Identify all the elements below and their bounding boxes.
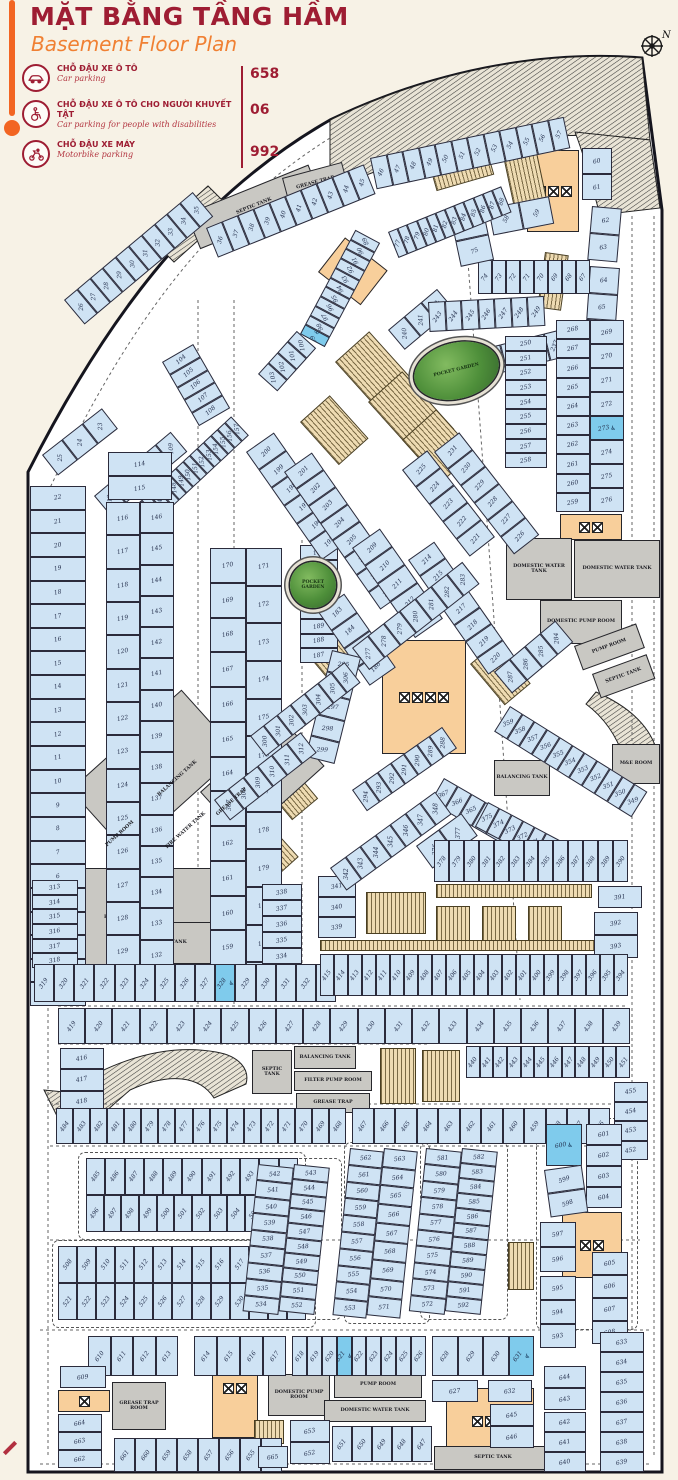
compass-north-label: N — [661, 30, 672, 41]
parking-stall: 122 — [106, 702, 140, 735]
parking-stall: 525 — [134, 1283, 153, 1320]
parking-stall: 490 — [182, 1158, 201, 1195]
parking-stall: 641 — [544, 1432, 586, 1452]
parking-stall: 72 — [506, 260, 520, 294]
parking-stall: 332 — [296, 964, 316, 1002]
parking-stall: 314 — [32, 895, 78, 910]
parking-stall: 527 — [172, 1283, 191, 1320]
parking-stall: 643 — [544, 1388, 586, 1410]
parking-stall: 71 — [520, 260, 534, 294]
parking-stall: 455 — [614, 1082, 648, 1102]
parking-stall: 244 — [445, 300, 463, 331]
parking-stall: 270 — [590, 344, 624, 368]
parking-stall: 165 — [210, 722, 246, 757]
parking-stall: 662 — [58, 1450, 102, 1468]
wheelchair-icon — [22, 100, 50, 128]
stair-core-right — [560, 514, 622, 540]
parking-stall: 432 — [412, 1008, 439, 1044]
parking-stall: 414 — [334, 954, 348, 996]
accent-bar — [9, 0, 15, 116]
parking-stall: 502 — [192, 1195, 210, 1232]
parking-stall: 275 — [590, 464, 624, 488]
parking-stall: 508 — [58, 1246, 77, 1283]
parking-stall: 328♿ — [215, 964, 235, 1002]
utility-room-balancing-tank-right: BALANCING TANK — [494, 760, 550, 796]
parking-stall: 248 — [511, 297, 529, 328]
parking-stall: 431 — [385, 1008, 412, 1044]
parking-col-269-276: 269270271272273♿274275276 — [590, 320, 624, 512]
parking-stall: 179 — [246, 849, 282, 887]
parking-stall: 497 — [104, 1195, 122, 1232]
parking-stall: 250 — [505, 336, 547, 351]
parking-stall: 339 — [318, 917, 356, 938]
parking-stall: 620 — [322, 1336, 337, 1376]
room-label: BALANCING TANK — [298, 1054, 351, 1062]
parking-stall: 383 — [509, 840, 524, 882]
parking-stall: 621♿ — [337, 1336, 352, 1376]
parking-stall: 171 — [246, 548, 282, 586]
parking-stall: 128 — [106, 902, 140, 935]
parking-stall: 629 — [458, 1336, 484, 1376]
parking-stall: 612 — [133, 1336, 156, 1376]
parking-stall: 118 — [106, 569, 140, 602]
legend-motorbike-label-en: Motorbike parking — [57, 150, 135, 160]
parking-stall: 139 — [140, 721, 174, 752]
utility-room-septic-tank-bottom: SEPTIC TANK — [434, 1446, 552, 1470]
parking-stall: 140 — [140, 690, 174, 721]
parking-stall: 606 — [592, 1275, 628, 1298]
legend-disabled-count: 06 — [250, 102, 269, 118]
parking-stall: 642 — [544, 1412, 586, 1432]
parking-stall: 459 — [524, 1108, 546, 1144]
parking-stall: 503 — [210, 1195, 228, 1232]
parking-stall: 425 — [221, 1008, 248, 1044]
room-label: DOMESTIC WATER TANK — [507, 563, 571, 576]
parking-stall: 124 — [106, 769, 140, 802]
room-label: SEPTIC TANK — [473, 1454, 513, 1462]
parking-stall: 134 — [140, 877, 174, 908]
parking-stall: 162 — [210, 826, 246, 861]
parking-stall: 396 — [586, 954, 600, 996]
parking-col-598-599: 599598 — [544, 1165, 588, 1218]
parking-stall: 469 — [312, 1108, 329, 1144]
parking-stall: 167 — [210, 652, 246, 687]
parking-stall: 470 — [295, 1108, 312, 1144]
parking-stall: 650 — [352, 1426, 372, 1462]
parking-stall: 266 — [556, 358, 590, 377]
parking-stall: 664 — [58, 1414, 102, 1432]
parking-col-131-146: 1461451441431421411401391381371361351341… — [140, 502, 174, 1002]
parking-stall: 430 — [358, 1008, 385, 1044]
parking-row-468-484: 4844834824814804794784774764754744734724… — [56, 1108, 346, 1144]
parking-stall: 661 — [114, 1438, 135, 1472]
parking-stall: 463 — [438, 1108, 460, 1144]
parking-stall: 443 — [507, 1046, 521, 1078]
room-label: BALANCING TANK — [495, 774, 548, 782]
room-label: PUMP ROOM — [359, 1381, 397, 1389]
parking-stall: 400 — [530, 954, 544, 996]
parking-stall: 475 — [210, 1108, 227, 1144]
car-icon — [22, 64, 50, 92]
parking-stall: 656 — [219, 1438, 240, 1472]
parking-stall: 410 — [390, 954, 404, 996]
parking-stall: 500 — [157, 1195, 175, 1232]
parking-stall: 415 — [320, 954, 334, 996]
parking-stall: 491 — [202, 1158, 221, 1195]
pocket-garden-small: POCKET GARDEN — [290, 562, 336, 608]
parking-stall: 471 — [278, 1108, 295, 1144]
parking-col-114-115: 114115 — [108, 452, 172, 500]
parking-stall: 604 — [586, 1187, 622, 1208]
parking-stall: 513 — [153, 1246, 172, 1283]
parking-stall: 390 — [613, 840, 628, 882]
parking-stall: 636 — [600, 1392, 644, 1412]
parking-stall: 169 — [210, 583, 246, 618]
parking-stall: 613 — [156, 1336, 179, 1376]
parking-col-643-644: 644643 — [544, 1366, 586, 1410]
parking-stall: 63 — [587, 233, 619, 263]
parking-row-67-74: 7473727170696867 — [478, 260, 590, 294]
parking-stall: 447 — [562, 1046, 576, 1078]
parking-stall: 630 — [483, 1336, 509, 1376]
parking-stall-665: 665 — [258, 1446, 288, 1468]
parking-stall: 168 — [210, 618, 246, 653]
parking-stall: 571 — [366, 1297, 402, 1319]
parking-stall: 253 — [505, 380, 547, 395]
parking-stall: 403 — [488, 954, 502, 996]
parking-stall: 334 — [262, 948, 302, 964]
parking-row-378-390: 378379380381382383384385386387388389390 — [434, 840, 628, 882]
parking-stall: 386 — [553, 840, 568, 882]
parking-stall: 534 — [243, 1295, 281, 1315]
parking-stall: 62 — [590, 206, 622, 236]
parking-stall: 498 — [121, 1195, 139, 1232]
room-label: SEPTIC TANK — [604, 666, 644, 687]
parking-stall: 65 — [586, 293, 618, 322]
parking-stall: 521 — [58, 1283, 77, 1320]
stair-core-central — [382, 640, 466, 754]
parking-stall: 509 — [77, 1246, 96, 1283]
parking-stall: 420 — [85, 1008, 112, 1044]
parking-stall: 421 — [112, 1008, 139, 1044]
parking-stall: 145 — [140, 533, 174, 564]
parking-stall: 426 — [249, 1008, 276, 1044]
parking-stall: 628 — [432, 1336, 458, 1376]
legend-item-car: CHỖ ĐẬU XE Ô TÔ Car parking — [22, 64, 236, 92]
parking-stall: 617 — [263, 1336, 286, 1376]
legend-car-label-vi: CHỖ ĐẬU XE Ô TÔ — [57, 64, 138, 74]
utility-room-grease-trap-room: GREASE TRAP ROOM — [112, 1382, 166, 1430]
parking-stall: 465 — [395, 1108, 417, 1144]
parking-stall: 483 — [73, 1108, 90, 1144]
parking-col-116-130: 1161171181191201211221231241251261271281… — [106, 502, 140, 1002]
parking-stall: 631♿ — [509, 1336, 535, 1376]
parking-col-60-61: 6061 — [582, 148, 612, 200]
parking-stall: 460 — [503, 1108, 525, 1144]
parking-col-652-653: 653652 — [290, 1420, 330, 1464]
parking-stall: 482 — [90, 1108, 107, 1144]
parking-stall: 70 — [534, 260, 548, 294]
parking-stall: 114 — [108, 452, 172, 476]
parking-stall: 467 — [352, 1108, 374, 1144]
parking-stall: 121 — [106, 669, 140, 702]
parking-stall: 320 — [54, 964, 74, 1002]
parking-stall: 316 — [32, 924, 78, 939]
compass-icon — [641, 35, 663, 57]
parking-stall: 338 — [262, 884, 302, 900]
parking-stall: 324 — [135, 964, 155, 1002]
parking-stall: 256 — [505, 424, 547, 439]
parking-stall: 255 — [505, 409, 547, 424]
parking-stall: 13 — [30, 699, 86, 723]
parking-stall: 329 — [235, 964, 255, 1002]
parking-stall: 487 — [125, 1158, 144, 1195]
parking-stall: 17 — [30, 604, 86, 628]
parking-stall: 337 — [262, 900, 302, 916]
parking-stall: 251 — [505, 351, 547, 366]
parking-stall: 18 — [30, 581, 86, 605]
parking-stall: 146 — [140, 502, 174, 533]
parking-stall: 170 — [210, 548, 246, 583]
legend-disabled-label-en: Car parking for people with disabilities — [57, 120, 236, 130]
parking-stall: 378 — [434, 840, 449, 882]
parking-stall: 464 — [417, 1108, 439, 1144]
parking-stall: 528 — [192, 1283, 211, 1320]
parking-stall: 263 — [556, 416, 590, 435]
parking-stall: 438 — [575, 1008, 602, 1044]
parking-stall: 60 — [582, 148, 612, 174]
parking-stall: 73 — [492, 260, 506, 294]
parking-stall: 640 — [544, 1452, 586, 1472]
parking-stall: 254 — [505, 395, 547, 410]
room-label: POCKET GARDEN — [432, 361, 481, 380]
room-label: GREASE TRAP — [312, 1099, 353, 1107]
parking-stall: 434 — [467, 1008, 494, 1044]
parking-stall: 596 — [540, 1247, 576, 1272]
motorbike-rack — [366, 892, 426, 934]
parking-stall: 408 — [418, 954, 432, 996]
parking-stall: 67 — [576, 260, 590, 294]
parking-stall: 144 — [140, 565, 174, 596]
parking-stall: 461 — [481, 1108, 503, 1144]
parking-stall: 262 — [556, 435, 590, 454]
parking-row-243-249: 243244245246247248249 — [428, 296, 545, 332]
parking-stall: 476 — [193, 1108, 210, 1144]
motorbike-rack — [508, 1242, 534, 1290]
parking-stall: 516 — [211, 1246, 230, 1283]
parking-stall: 384 — [524, 840, 539, 882]
parking-stall: 446 — [548, 1046, 562, 1078]
parking-stall: 392 — [594, 912, 638, 935]
parking-stall: 600♿ — [546, 1124, 582, 1166]
parking-stall: 247 — [494, 298, 512, 329]
legend-motorbike-label-vi: CHỖ ĐẬU XE MÁY — [57, 140, 135, 150]
legend-disabled-label-vi: CHỖ ĐẬU XE Ô TÔ CHO NGƯỜI KHUYẾT TẬT — [57, 100, 236, 120]
parking-stall: 68 — [562, 260, 576, 294]
parking-stall: 614 — [194, 1336, 217, 1376]
parking-stall: 625 — [396, 1336, 411, 1376]
parking-col-593-595: 595594593 — [540, 1276, 576, 1348]
parking-stall: 477 — [175, 1108, 192, 1144]
motorbike-icon — [22, 140, 50, 168]
parking-stall: 159 — [210, 930, 246, 965]
parking-stall: 269 — [590, 320, 624, 344]
parking-stall: 512 — [134, 1246, 153, 1283]
room-label: M&E ROOM — [619, 760, 654, 768]
parking-stall: 8 — [30, 817, 86, 841]
parking-stall: 652 — [290, 1442, 330, 1464]
parking-stall: 119 — [106, 602, 140, 635]
parking-stall: 411 — [376, 954, 390, 996]
parking-stall: 439 — [603, 1008, 630, 1044]
parking-row-614-617: 614615616617 — [194, 1336, 286, 1376]
parking-stall: 449 — [589, 1046, 603, 1078]
parking-stall: 651 — [332, 1426, 352, 1462]
parking-stall: 7 — [30, 841, 86, 865]
parking-stall: 638 — [600, 1432, 644, 1452]
parking-stall: 379 — [449, 840, 464, 882]
parking-stall: 22 — [30, 486, 86, 510]
parking-stall: 340 — [318, 897, 356, 918]
parking-stall: 441 — [480, 1046, 494, 1078]
parking-col-596-597: 597596 — [540, 1222, 576, 1272]
parking-stall: 492 — [221, 1158, 240, 1195]
parking-stall: 626 — [411, 1336, 426, 1376]
parking-stall: 319 — [34, 964, 54, 1002]
parking-stall: 322 — [94, 964, 114, 1002]
parking-stall: 15 — [30, 651, 86, 675]
parking-stall: 468 — [329, 1108, 346, 1144]
legend-car-count: 658 — [250, 66, 279, 82]
parking-stall: 466 — [374, 1108, 396, 1144]
parking-stall: 440 — [466, 1046, 480, 1078]
parking-stall: 160 — [210, 896, 246, 931]
motorbike-rack — [380, 1048, 416, 1104]
parking-stall: 19 — [30, 557, 86, 581]
parking-stall: 501 — [174, 1195, 192, 1232]
parking-stall: 658 — [177, 1438, 198, 1472]
parking-stall: 397 — [572, 954, 586, 996]
parking-stall: 61 — [582, 174, 612, 200]
parking-stall: 402 — [502, 954, 516, 996]
parking-stall: 14 — [30, 675, 86, 699]
parking-row-618-626: 618619620621♿622623624625626 — [292, 1336, 426, 1376]
parking-stall: 166 — [210, 687, 246, 722]
parking-stall: 444 — [521, 1046, 535, 1078]
parking-stall: 526 — [153, 1283, 172, 1320]
parking-stall: 399 — [544, 954, 558, 996]
parking-stall: 419 — [58, 1008, 85, 1044]
parking-stall: 429 — [330, 1008, 357, 1044]
utility-room-septic-tank-mid: SEPTIC TANK — [252, 1050, 292, 1094]
parking-stall: 486 — [105, 1158, 124, 1195]
basement-floor-plan: N MẶT BẰNG TẦNG HẦM Basement Floor Plan … — [0, 0, 678, 1480]
parking-row-319-333: 319320321322323324325326327328♿329330331… — [34, 964, 336, 1002]
parking-stall: 523 — [96, 1283, 115, 1320]
parking-stall: 454 — [614, 1102, 648, 1122]
parking-stall: 619 — [307, 1336, 322, 1376]
parking-col-416-418: 416417418 — [60, 1048, 104, 1112]
parking-stall: 603 — [586, 1166, 622, 1187]
parking-stall: 450 — [603, 1046, 617, 1078]
utility-room-domestic-water-tank-2: DOMESTIC WATER TANK — [574, 540, 660, 598]
parking-stall: 522 — [77, 1283, 96, 1320]
parking-stall: 462 — [460, 1108, 482, 1144]
parking-stall: 142 — [140, 627, 174, 658]
parking-stall: 437 — [548, 1008, 575, 1044]
utility-room-balancing-tank-mid: BALANCING TANK — [294, 1046, 356, 1069]
parking-stall: 394 — [614, 954, 628, 996]
parking-stall: 258 — [505, 453, 547, 468]
parking-stall: 116 — [106, 502, 140, 535]
legend-car-label-en: Car parking — [57, 74, 138, 84]
parking-stall: 11 — [30, 746, 86, 770]
parking-stall: 381 — [479, 840, 494, 882]
parking-stall: 21 — [30, 510, 86, 534]
parking-stall: 633 — [600, 1332, 644, 1352]
parking-stall: 524 — [115, 1283, 134, 1320]
parking-stall: 435 — [494, 1008, 521, 1044]
parking-stall: 647 — [412, 1426, 432, 1462]
parking-stall: 616 — [240, 1336, 263, 1376]
parking-stall: 274 — [590, 440, 624, 464]
legend-item-motorbike: CHỖ ĐẬU XE MÁY Motorbike parking — [22, 140, 236, 168]
parking-stall: 644 — [544, 1366, 586, 1388]
parking-stall: 645 — [490, 1404, 534, 1426]
parking-stall: 252 — [505, 365, 547, 380]
parking-stall: 404 — [474, 954, 488, 996]
parking-stall: 398 — [558, 954, 572, 996]
room-label: DOMESTIC WATER TANK — [339, 1407, 410, 1415]
parking-stall: 335 — [262, 932, 302, 948]
parking-stall: 141 — [140, 658, 174, 689]
parking-stall: 173 — [246, 623, 282, 661]
parking-stall: 496 — [86, 1195, 104, 1232]
parking-row-419-439: 4194204214224234244254264274284294304314… — [58, 1008, 630, 1044]
wheelchair-stall-icon: ♿ — [229, 980, 234, 987]
parking-stall: 593 — [540, 1324, 576, 1348]
room-label: SEPTIC TANK — [253, 1066, 291, 1079]
room-label: PUMP ROOM — [590, 637, 628, 657]
parking-stall: 609 — [60, 1366, 106, 1388]
parking-stall: 20 — [30, 533, 86, 557]
parking-stall: 473 — [244, 1108, 261, 1144]
parking-stall: 445 — [534, 1046, 548, 1078]
parking-stall: 485 — [86, 1158, 105, 1195]
parking-stall: 481 — [107, 1108, 124, 1144]
motorbike-rack — [320, 940, 620, 951]
parking-col-662-664: 664663662 — [58, 1414, 102, 1468]
parking-stall: 474 — [227, 1108, 244, 1144]
parking-stall: 510 — [96, 1246, 115, 1283]
parking-stall: 605 — [592, 1252, 628, 1275]
parking-stall-609: 609 — [60, 1366, 106, 1388]
legend-motorbike-count: 992 — [250, 144, 279, 160]
parking-stall: 321 — [74, 964, 94, 1002]
parking-stall: 323 — [115, 964, 135, 1002]
parking-col-313-318: 313314315316317318 — [32, 880, 78, 968]
parking-stall: 514 — [172, 1246, 191, 1283]
parking-stall: 188 — [300, 634, 338, 649]
parking-stall: 315 — [32, 909, 78, 924]
parking-stall: 597 — [540, 1222, 576, 1247]
parking-stall-391: 391 — [598, 886, 642, 908]
room-label: POCKET GARDEN — [290, 579, 336, 592]
parking-stall: 133 — [140, 908, 174, 939]
parking-stall: 484 — [56, 1108, 73, 1144]
parking-col-640-642: 642641640 — [544, 1412, 586, 1472]
parking-stall: 602 — [586, 1145, 622, 1166]
